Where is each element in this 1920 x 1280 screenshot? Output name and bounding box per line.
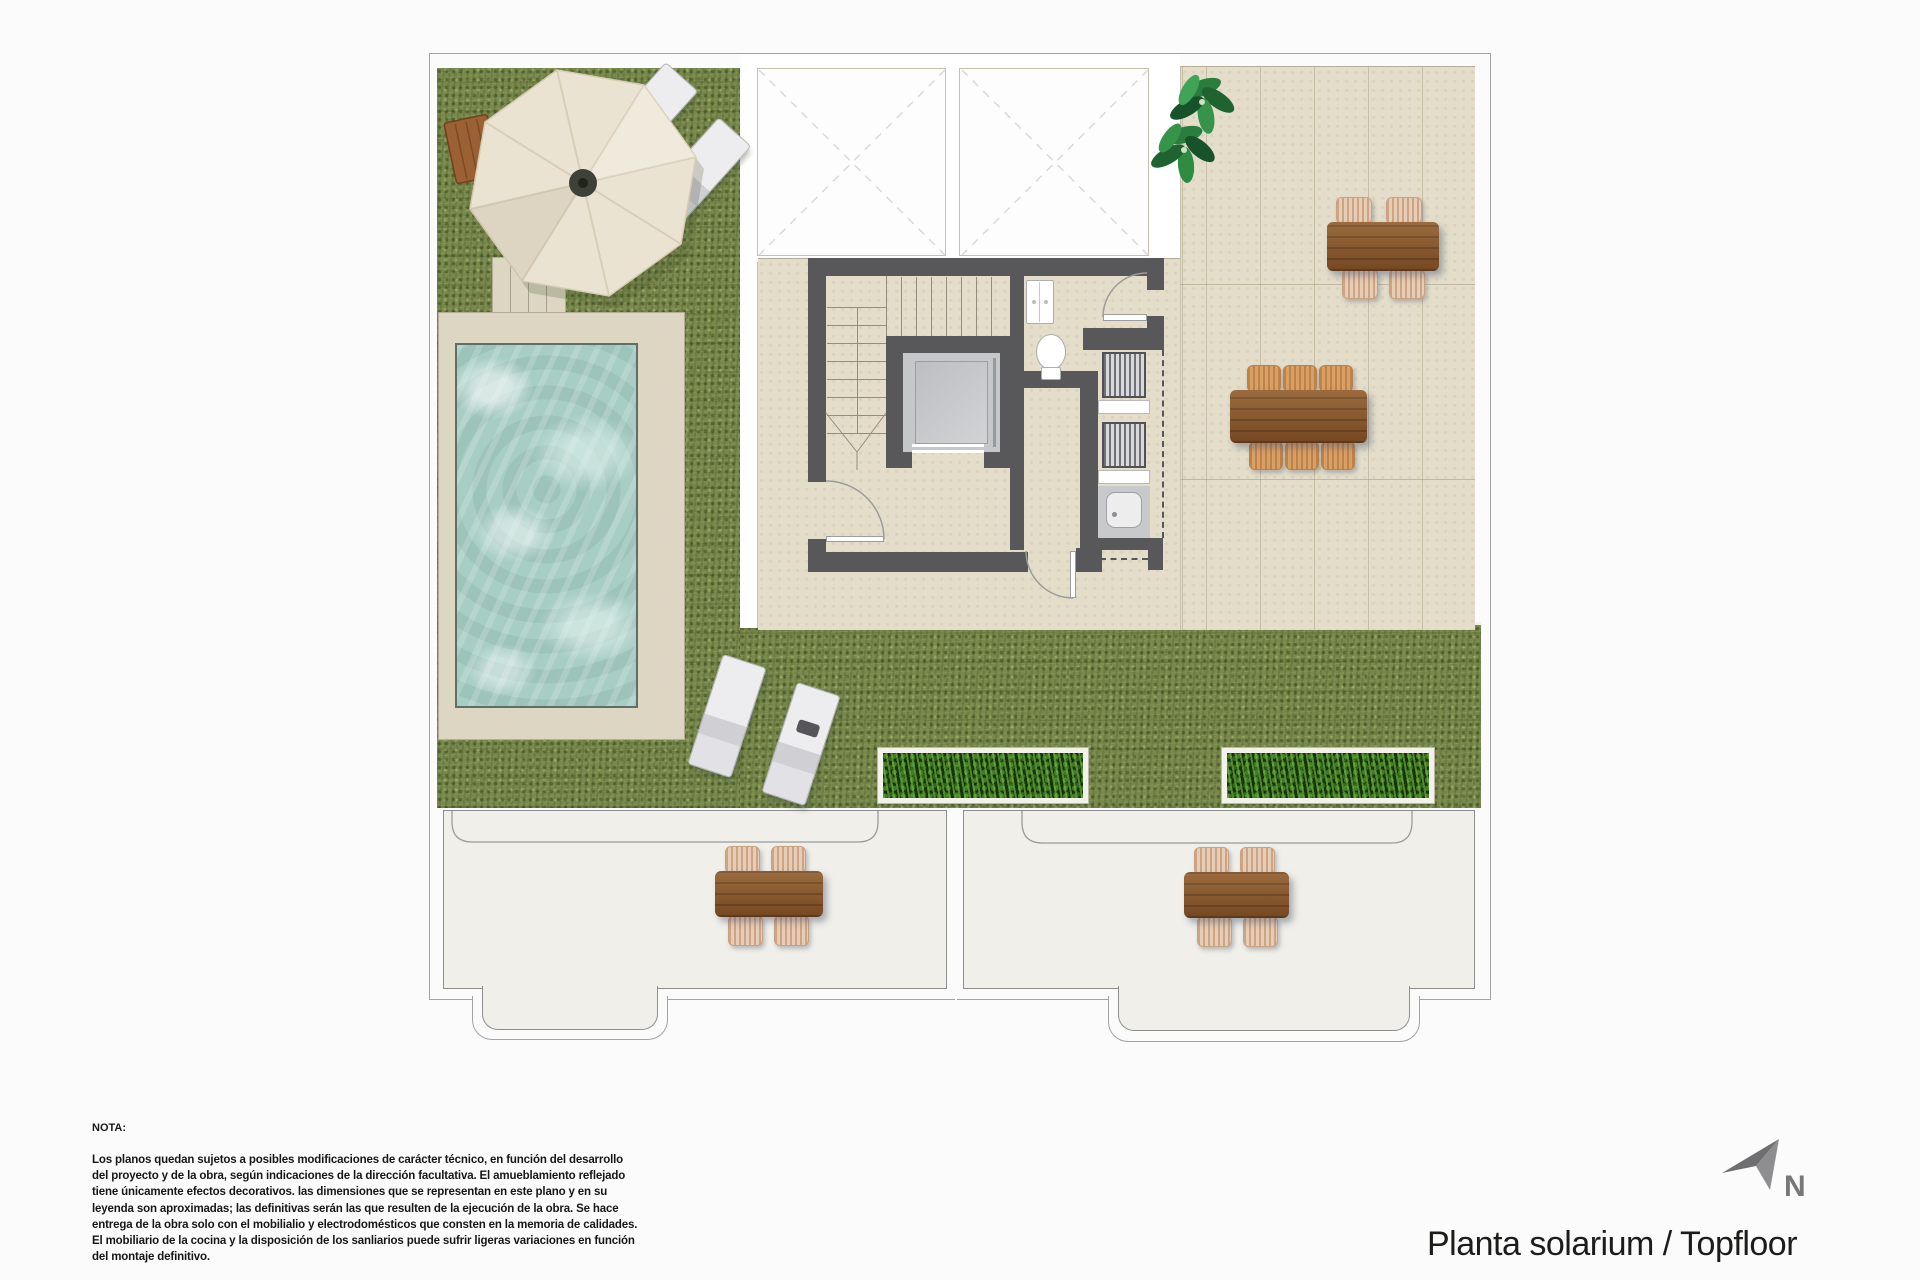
dining-table-4 (1327, 222, 1439, 271)
sink-drain (1112, 512, 1117, 517)
stair-tread (991, 277, 992, 336)
door-leaf-lobby-south (1070, 551, 1076, 598)
north-label: N (1784, 1170, 1806, 1204)
washbasin-cabinet (1026, 280, 1054, 324)
stair-flight-divider (857, 307, 858, 433)
wall-utility-top (1083, 328, 1164, 350)
wall-core-left-upper (808, 276, 826, 482)
door-leaf-lobby-west (826, 536, 884, 542)
planter-box-right (1222, 748, 1434, 803)
pool-deck-steps (492, 257, 566, 314)
washbasin-knob (1032, 300, 1036, 304)
wall-core-top (808, 258, 1164, 276)
wall-core-bottom (826, 552, 1028, 572)
chair (1240, 847, 1275, 875)
lower-terrace-left-notch (482, 986, 658, 1030)
chair (1247, 365, 1281, 392)
chair (1194, 847, 1229, 875)
notes-line: El mobiliario de la cocina y la disposic… (92, 1233, 637, 1249)
step-line (528, 258, 529, 313)
wall-shaft-bottom-left (886, 452, 912, 468)
chair (725, 846, 760, 874)
chair (1389, 269, 1425, 299)
stair-tread (946, 277, 947, 336)
wall-utility-left (1080, 388, 1098, 538)
step-line (510, 258, 511, 313)
skylight-void-left (757, 68, 946, 256)
notes-line: tiene únicamente efectos decorativos. la… (92, 1184, 637, 1200)
washbasin-divider (1039, 282, 1040, 322)
wall-bathroom-left (1010, 276, 1024, 550)
stair-tread (827, 433, 886, 434)
chair (1283, 365, 1317, 392)
floor-plan-page: N Planta solarium / Topfloor NOTA: Los p… (0, 0, 1920, 1280)
wall-shaft-right (1000, 353, 1010, 452)
utility-open-side-dashed (1162, 350, 1164, 538)
chair (1321, 441, 1355, 470)
chair (1336, 197, 1372, 224)
utility-shelf (1098, 400, 1150, 414)
wall-shaft-left (886, 353, 903, 452)
wall-shaft-top (886, 336, 1010, 353)
stair-tread (886, 276, 887, 336)
site-boundary-top (429, 53, 1491, 54)
notes-line: entrega de la obra solo con el mobiliali… (92, 1217, 637, 1233)
notes-line: Los planos quedan sujetos a posibles mod… (92, 1152, 637, 1168)
stair-tread (976, 277, 977, 336)
lower-terrace-left (443, 810, 947, 989)
elevator-cab-inner (915, 361, 988, 444)
site-boundary-left (429, 53, 430, 810)
notes-line: leyenda son aproximadas; las definitivas… (92, 1201, 637, 1217)
utility-shelf (1098, 470, 1150, 484)
ac-unit (1102, 422, 1146, 468)
wall-core-left-lower (808, 539, 826, 572)
washbasin-knob (1044, 300, 1048, 304)
notes-line: del proyecto y de la obra, según indicac… (92, 1168, 637, 1184)
elevator-guide-rail (993, 358, 996, 447)
step-line (546, 258, 547, 313)
toilet-bowl (1036, 334, 1066, 370)
wall-utility-bottom-strip (1100, 538, 1148, 550)
stair-tread (961, 277, 962, 336)
page-title: Planta solarium / Topfloor (1427, 1225, 1797, 1264)
notes-line: del montaje definitivo. (92, 1249, 637, 1265)
chair (774, 915, 809, 946)
north-arrow-icon (1722, 1139, 1779, 1190)
dining-table-lower-right (1184, 872, 1289, 918)
chair (1319, 365, 1353, 392)
wall-shaft-bottom-right (984, 452, 1010, 468)
dining-table-6 (1230, 390, 1367, 443)
chair (1243, 916, 1278, 947)
elevator-door-sill (912, 450, 984, 453)
swimming-pool (455, 343, 638, 708)
notes-block: NOTA: Los planos quedan sujetos a posibl… (92, 1122, 637, 1265)
wall-right-door-jamb-top (1147, 276, 1164, 290)
chair (1197, 916, 1232, 947)
dining-table-lower-left (715, 871, 823, 917)
ac-unit (1102, 352, 1146, 398)
chair (1342, 269, 1378, 299)
stair-tread (916, 277, 917, 336)
chair (1285, 441, 1319, 470)
utility-opening-dashed (1100, 558, 1148, 560)
chair (728, 915, 763, 946)
utility-sink (1106, 492, 1142, 528)
east-terrace-floor (1180, 66, 1475, 630)
stair-tread (901, 277, 902, 336)
chair (1386, 197, 1422, 224)
door-leaf-bathroom (1103, 314, 1147, 321)
wall-right-door-jamb-bottom (1147, 316, 1164, 330)
chair (1249, 441, 1283, 470)
toilet-tank (1041, 367, 1061, 380)
notes-heading: NOTA: (92, 1122, 637, 1134)
stair-tread (931, 277, 932, 336)
lower-terrace-right-notch (1118, 986, 1410, 1031)
grass-edge-strip (740, 262, 758, 628)
planter-box-left (878, 748, 1088, 803)
elevator-door-sill (912, 444, 984, 447)
wall-utility-bottom-right (1148, 538, 1163, 570)
wall-utility-bottom-left (1080, 538, 1100, 572)
chair (771, 846, 806, 874)
skylight-void-right (959, 68, 1149, 256)
